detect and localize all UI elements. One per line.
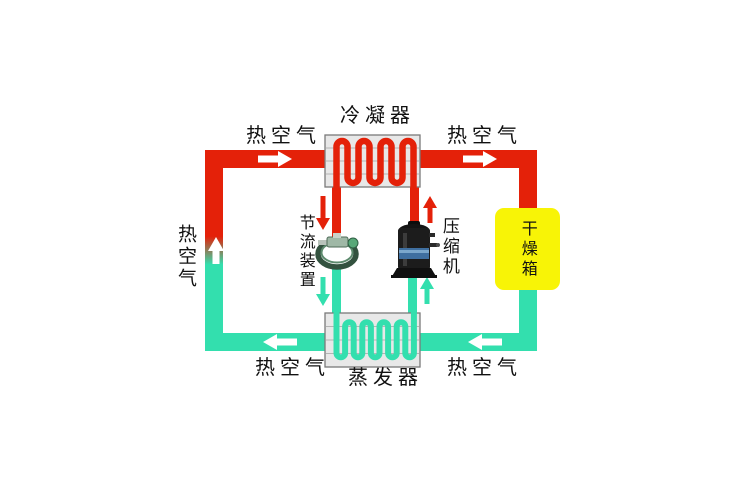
hot-flow-arrow-up-icon	[423, 196, 437, 208]
throttle-valve-cap	[333, 233, 341, 238]
hot-air-label-bottom-left: 热空气	[255, 358, 330, 379]
hot-air-label-top-right: 热空气	[447, 126, 522, 147]
throttle-valve-knob	[348, 238, 358, 248]
evaporator-label: 蒸发器	[348, 368, 423, 389]
throttle-device-label: 节流装置	[296, 214, 313, 290]
throttle-device-illustration	[318, 233, 358, 267]
hot-flow-arrow-up-shaft	[428, 206, 433, 223]
hot-flow-arrow-down-icon	[316, 218, 330, 230]
cold-flow-arrow-up-icon	[420, 277, 434, 289]
compressor-port-upper	[429, 233, 435, 237]
compressor-port-lower	[429, 243, 437, 247]
compressor-illustration	[391, 221, 440, 278]
compressor-label: 压缩机	[440, 217, 458, 277]
hot-air-duct-to-dryer	[519, 150, 537, 210]
cold-flow-arrow-down-shaft	[321, 277, 326, 295]
diagram-canvas	[0, 0, 750, 500]
cold-flow-arrow-up-shaft	[425, 287, 430, 304]
throttle-valve-body	[327, 237, 348, 247]
hot-air-label-left-vertical: 热空气	[175, 224, 195, 290]
heat-pump-dryer-diagram: 冷凝器 蒸发器 热空气 热空气 热空气 热空气 热空气 节流装置 压缩机 干燥箱	[0, 0, 750, 500]
hot-flow-arrow-down-shaft	[321, 196, 326, 219]
cold-flow-arrow-down-icon	[316, 294, 330, 306]
hot-air-label-top-left: 热空气	[246, 126, 321, 147]
condenser-label: 冷凝器	[340, 106, 415, 127]
hot-air-label-bottom-right: 热空气	[447, 358, 522, 379]
drying-box-label: 干燥箱	[518, 220, 535, 280]
compressor-label-band	[399, 248, 429, 259]
